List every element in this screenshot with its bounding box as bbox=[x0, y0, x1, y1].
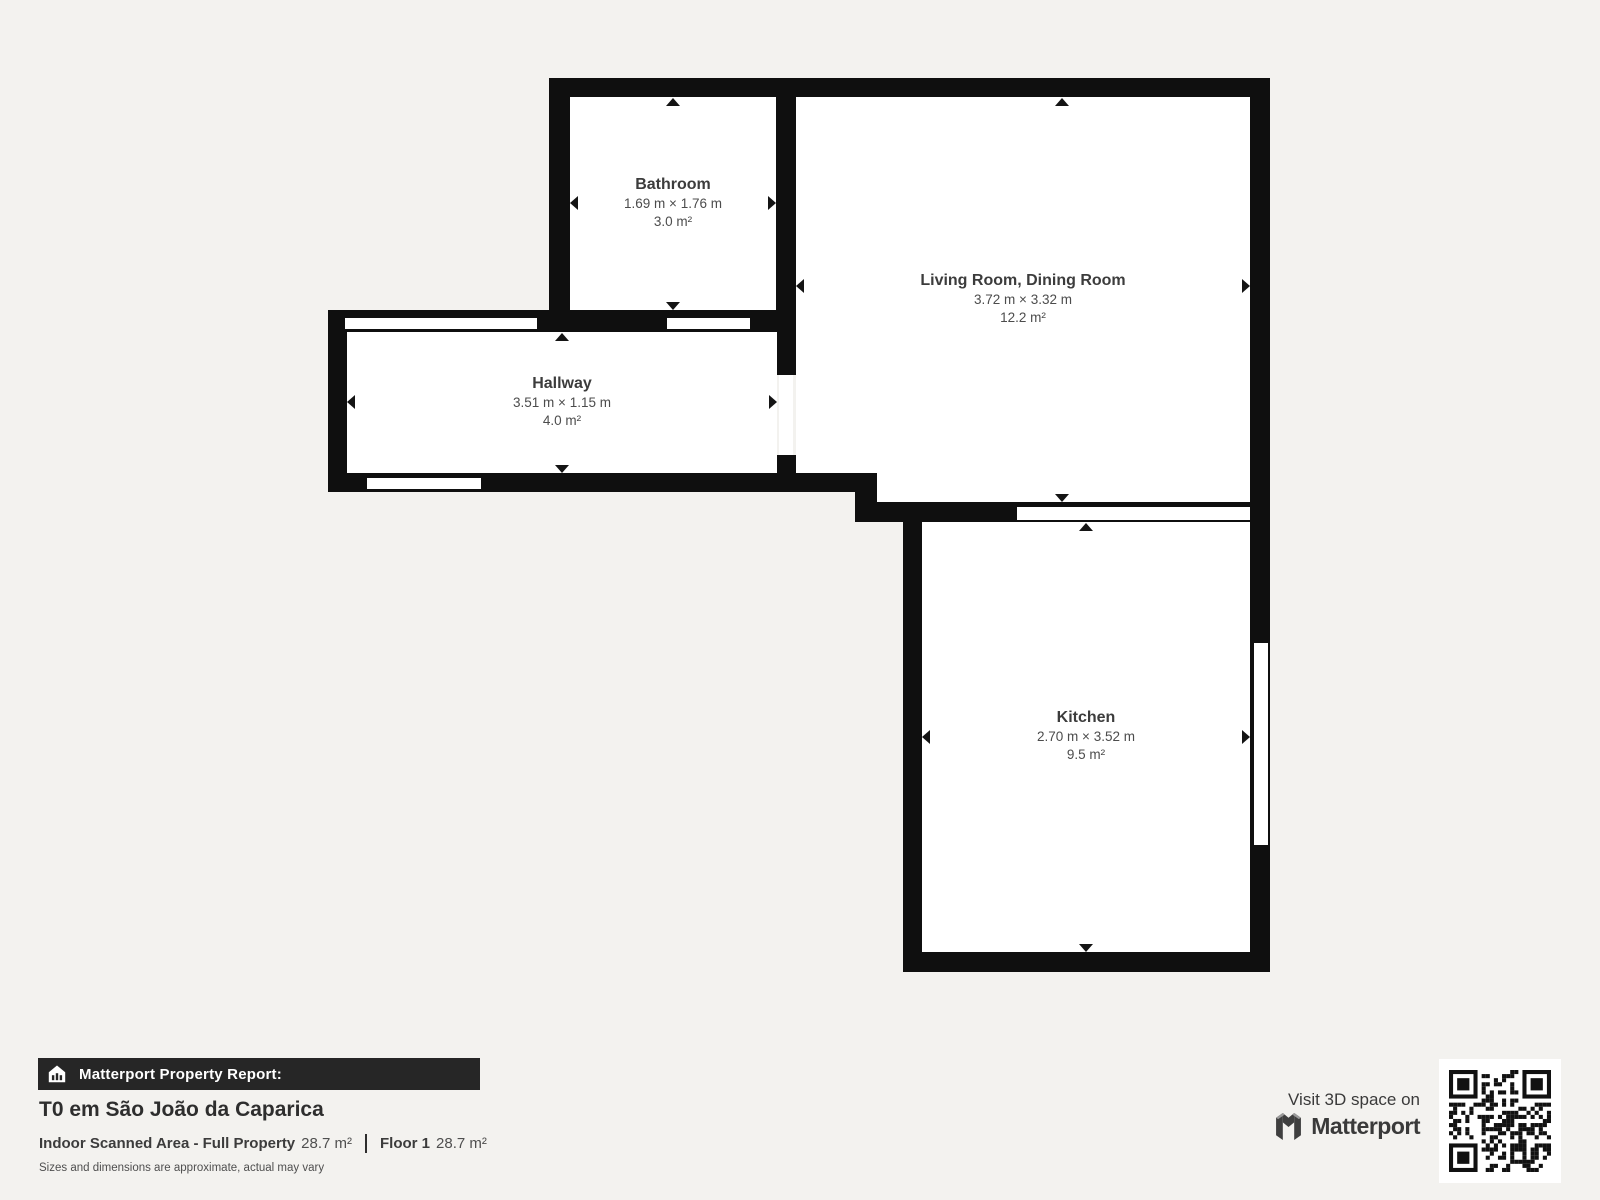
room-dimensions: 3.72 m × 3.32 m bbox=[920, 291, 1125, 309]
wall-kitchen-left bbox=[903, 522, 922, 972]
room-area: 9.5 m² bbox=[1037, 746, 1135, 764]
dimension-arrow-right-icon bbox=[1242, 279, 1250, 293]
hallway-bottom-window-marker bbox=[367, 478, 481, 489]
property-report-page: Bathroom 1.69 m × 1.76 m 3.0 m² Living R… bbox=[0, 0, 1600, 1200]
dimension-arrow-right-icon bbox=[769, 395, 777, 409]
dimension-arrow-down-icon bbox=[1055, 494, 1069, 502]
dimension-arrow-left-icon bbox=[570, 196, 578, 210]
bathroom-door-marker bbox=[667, 318, 750, 329]
dimension-arrow-up-icon bbox=[555, 333, 569, 341]
dimension-arrow-down-icon bbox=[666, 302, 680, 310]
kitchen-opening-marker bbox=[1017, 507, 1250, 520]
room-name: Living Room, Dining Room bbox=[920, 271, 1125, 291]
living-room-label: Living Room, Dining Room 3.72 m × 3.32 m… bbox=[920, 271, 1125, 327]
area-stats-row: Indoor Scanned Area - Full Property 28.7… bbox=[39, 1134, 487, 1153]
kitchen-window-marker bbox=[1254, 643, 1268, 845]
room-dimensions: 2.70 m × 3.52 m bbox=[1037, 728, 1135, 746]
dimension-arrow-up-icon bbox=[1079, 523, 1093, 531]
room-area: 3.0 m² bbox=[624, 213, 722, 231]
kitchen-label: Kitchen 2.70 m × 3.52 m 9.5 m² bbox=[1037, 708, 1135, 764]
visit-3d-text: Visit 3D space on bbox=[1288, 1090, 1420, 1110]
dimension-arrow-right-icon bbox=[768, 196, 776, 210]
disclaimer-text: Sizes and dimensions are approximate, ac… bbox=[39, 1162, 324, 1174]
dimension-arrow-left-icon bbox=[922, 730, 930, 744]
dimension-arrow-down-icon bbox=[555, 465, 569, 473]
dimension-arrow-down-icon bbox=[1079, 944, 1093, 952]
wall-top bbox=[549, 78, 1270, 97]
room-dimensions: 1.69 m × 1.76 m bbox=[624, 195, 722, 213]
floor-value: 28.7 m² bbox=[436, 1135, 487, 1152]
floor-label: Floor 1 bbox=[380, 1135, 430, 1152]
room-area: 4.0 m² bbox=[513, 412, 611, 430]
wall-kitchen-bottom bbox=[903, 952, 1270, 972]
room-name: Hallway bbox=[513, 374, 611, 394]
room-dimensions: 3.51 m × 1.15 m bbox=[513, 394, 611, 412]
wall-corner-step bbox=[855, 492, 877, 522]
wall-hallway-left bbox=[328, 310, 347, 492]
matterport-brand: Matterport bbox=[1275, 1112, 1420, 1141]
dimension-arrow-right-icon bbox=[1242, 730, 1250, 744]
stats-divider bbox=[365, 1134, 367, 1153]
matterport-wordmark: Matterport bbox=[1311, 1113, 1420, 1140]
floor-plan: Bathroom 1.69 m × 1.76 m 3.0 m² Living R… bbox=[0, 0, 1600, 1200]
house-icon bbox=[48, 1065, 66, 1083]
indoor-area-value: 28.7 m² bbox=[301, 1135, 352, 1152]
dimension-arrow-left-icon bbox=[796, 279, 804, 293]
qr-code bbox=[1439, 1059, 1561, 1183]
property-title: T0 em São João da Caparica bbox=[39, 1098, 324, 1122]
hallway-label: Hallway 3.51 m × 1.15 m 4.0 m² bbox=[513, 374, 611, 430]
indoor-area-label: Indoor Scanned Area - Full Property bbox=[39, 1135, 295, 1152]
room-name: Kitchen bbox=[1037, 708, 1135, 728]
bathroom-label: Bathroom 1.69 m × 1.76 m 3.0 m² bbox=[624, 175, 722, 231]
hallway-living-door-marker bbox=[779, 375, 793, 455]
dimension-arrow-up-icon bbox=[666, 98, 680, 106]
matterport-logo-icon bbox=[1275, 1112, 1302, 1141]
hallway-window-marker bbox=[345, 318, 537, 329]
dimension-arrow-up-icon bbox=[1055, 98, 1069, 106]
report-header-bar: Matterport Property Report: bbox=[38, 1058, 480, 1090]
report-bar-label: Matterport Property Report: bbox=[79, 1066, 282, 1083]
room-name: Bathroom bbox=[624, 175, 722, 195]
dimension-arrow-left-icon bbox=[347, 395, 355, 409]
room-area: 12.2 m² bbox=[920, 309, 1125, 327]
wall-bathroom-left bbox=[549, 78, 570, 332]
